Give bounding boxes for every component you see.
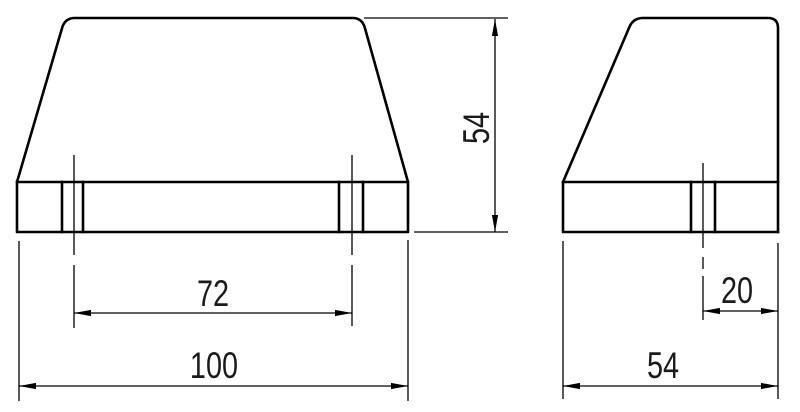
- front-view-trapezoid-outline: [17, 18, 408, 182]
- dim-height-arrow-down: [492, 215, 498, 232]
- front-view: [17, 18, 408, 232]
- dim-front-total-label: 100: [190, 346, 238, 387]
- dim-side-inner-label: 20: [721, 271, 753, 312]
- dim-side-total-arrow-right: [761, 383, 778, 389]
- side-view-base-rect: [563, 182, 778, 232]
- front-view-base-rect: [17, 182, 408, 232]
- dimension-drawing: 54 72 100 20 54: [0, 0, 800, 412]
- dim-height-arrow-up: [492, 19, 498, 36]
- dim-side-inner-arrow-right: [761, 308, 778, 314]
- dim-side-inner-arrow-left: [703, 308, 720, 314]
- dim-height-label: 54: [457, 112, 498, 144]
- side-view-outline: [563, 18, 778, 232]
- dim-front-inner-label: 72: [197, 274, 229, 315]
- dim-front-inner-arrow-right: [335, 310, 352, 316]
- dim-front-total-arrow-left: [19, 383, 36, 389]
- side-view: [563, 18, 778, 232]
- technical-drawing-canvas: 54 72 100 20 54: [0, 0, 800, 412]
- dim-front-total-arrow-right: [391, 383, 408, 389]
- dim-front-inner-arrow-left: [74, 310, 91, 316]
- dim-side-total-arrow-left: [563, 383, 580, 389]
- dim-side-total-label: 54: [647, 346, 679, 387]
